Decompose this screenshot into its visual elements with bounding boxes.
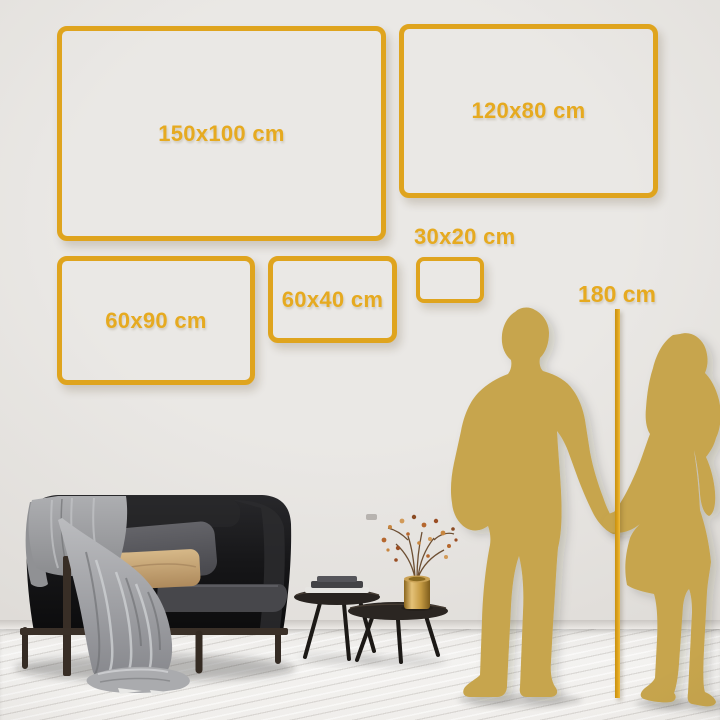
couple-silhouettes [0,0,720,720]
woman-silhouette [603,333,720,706]
size-guide-scene: 150x100 cm 120x80 cm 60x90 cm 60x40 cm 3… [0,0,720,720]
height-label: 180 cm [537,281,697,308]
man-silhouette [451,308,619,697]
height-measure-line [615,309,620,698]
